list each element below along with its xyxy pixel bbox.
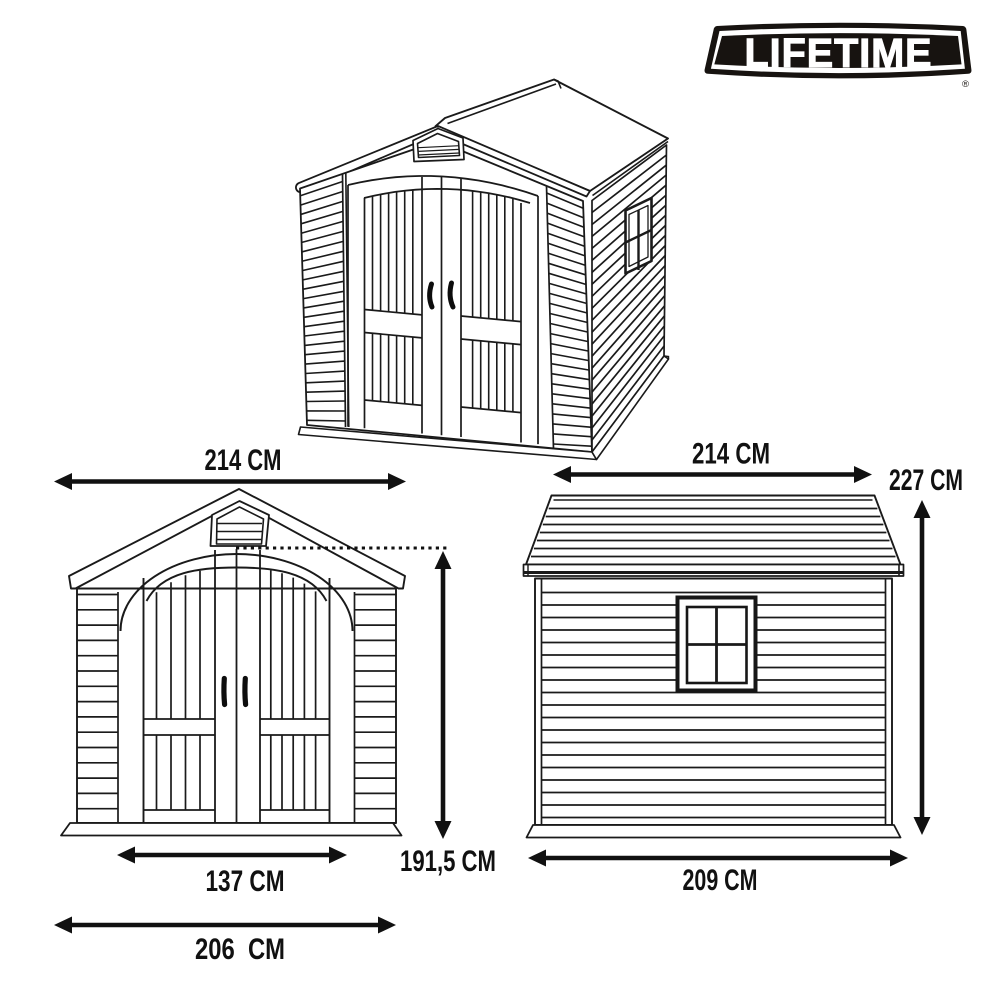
svg-text:191,5 CM: 191,5 CM bbox=[400, 845, 496, 878]
svg-text:LIFETIME: LIFETIME bbox=[745, 30, 933, 76]
svg-text:214 CM: 214 CM bbox=[205, 444, 282, 477]
svg-text:227 CM: 227 CM bbox=[889, 464, 963, 497]
svg-text:206 CM: 206 CM bbox=[195, 933, 285, 966]
svg-text:209 CM: 209 CM bbox=[683, 864, 758, 897]
svg-text:137 CM: 137 CM bbox=[206, 865, 285, 898]
svg-text:214 CM: 214 CM bbox=[692, 438, 770, 471]
svg-text:®: ® bbox=[962, 79, 969, 90]
